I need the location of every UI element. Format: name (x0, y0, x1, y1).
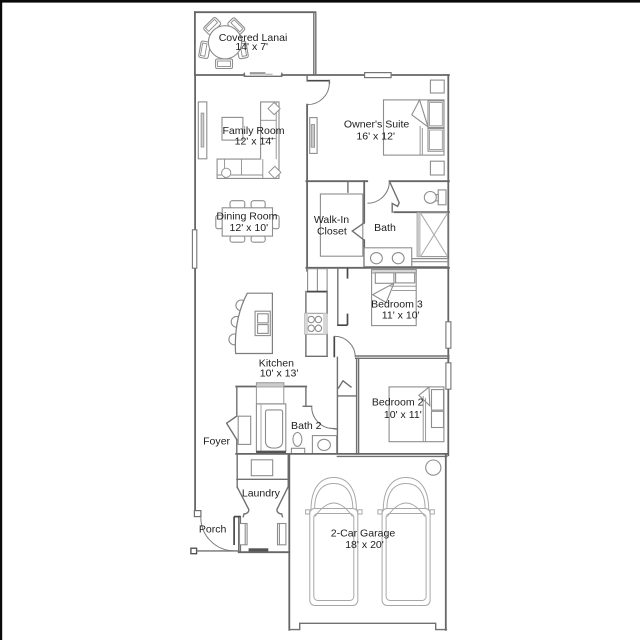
svg-text:Owner's Suite: Owner's Suite (344, 119, 409, 131)
svg-text:16' x 12': 16' x 12' (356, 131, 395, 143)
svg-text:10' x 13': 10' x 13' (260, 367, 299, 379)
svg-text:14' x 7': 14' x 7' (235, 41, 268, 53)
svg-text:10' x 11': 10' x 11' (384, 409, 422, 421)
svg-text:Dining Room: Dining Room (216, 211, 277, 223)
svg-text:Bath 2: Bath 2 (291, 420, 322, 432)
svg-text:Walk-In: Walk-In (314, 214, 349, 226)
svg-text:Laundry: Laundry (242, 487, 281, 499)
svg-text:Closet: Closet (317, 226, 347, 238)
svg-text:18' x 20': 18' x 20' (345, 539, 384, 551)
svg-text:12' x 14': 12' x 14' (235, 135, 274, 147)
svg-text:Foyer: Foyer (203, 435, 230, 447)
svg-text:11' x 10': 11' x 10' (382, 310, 420, 322)
svg-text:12' x 10': 12' x 10' (229, 222, 268, 234)
svg-text:Bath: Bath (374, 222, 396, 234)
svg-text:Bedroom 2: Bedroom 2 (372, 397, 424, 409)
svg-text:2-Car Garage: 2-Car Garage (331, 528, 396, 540)
svg-text:Porch: Porch (199, 524, 227, 536)
